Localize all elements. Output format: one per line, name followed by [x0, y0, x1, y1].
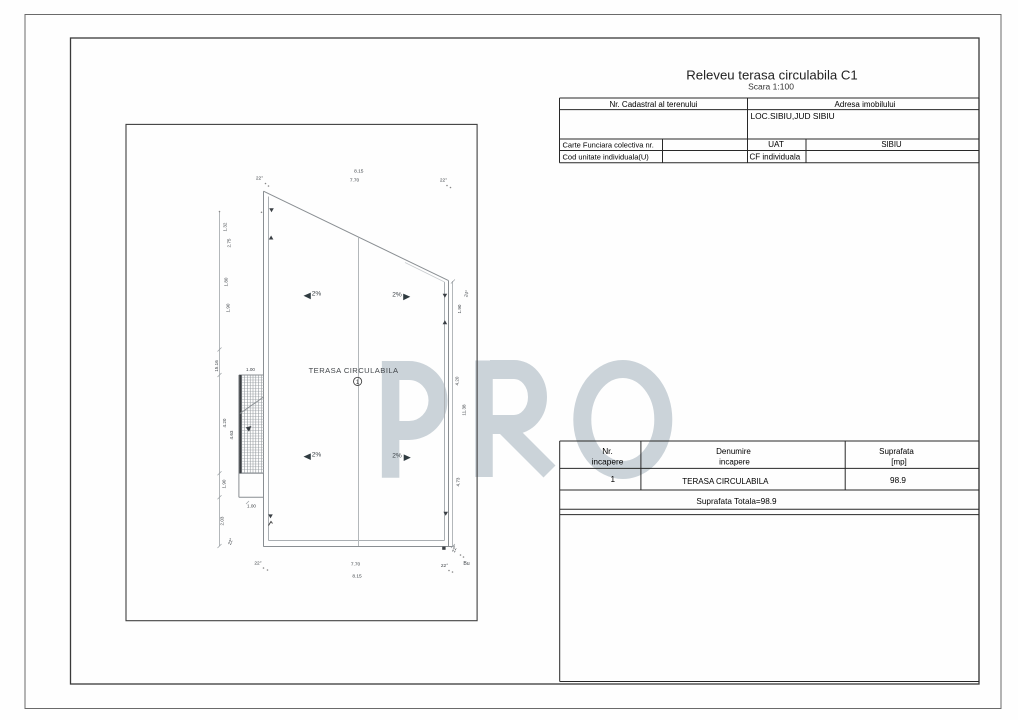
svg-text:11.38: 11.38 — [461, 404, 466, 416]
svg-text:Bu: Bu — [463, 561, 469, 567]
svg-text:2%: 2% — [392, 453, 402, 460]
svg-text:4.63: 4.63 — [229, 430, 234, 439]
svg-text:1.90: 1.90 — [457, 304, 462, 313]
svg-text:22°: 22° — [441, 563, 448, 569]
svg-text:TERASA CIRCULABILA: TERASA CIRCULABILA — [309, 366, 399, 375]
svg-text:Scara 1:100: Scara 1:100 — [748, 82, 794, 92]
svg-text:4.20: 4.20 — [454, 376, 459, 385]
svg-text:incapere: incapere — [592, 456, 624, 466]
svg-text:Suprafata: Suprafata — [879, 447, 914, 456]
svg-text:Cod unitate individuala(U): Cod unitate individuala(U) — [563, 153, 650, 162]
svg-text:2%: 2% — [312, 452, 322, 459]
svg-text:8.15: 8.15 — [352, 574, 362, 580]
svg-text:CF individuala: CF individuala — [750, 153, 801, 162]
svg-text:Carte Funciara colectiva nr.: Carte Funciara colectiva nr. — [563, 140, 654, 149]
svg-text:Nr.: Nr. — [602, 446, 613, 456]
svg-text:22°: 22° — [254, 561, 261, 567]
svg-text:15.16: 15.16 — [214, 360, 219, 372]
svg-text:98.9: 98.9 — [890, 476, 906, 485]
svg-text:22°: 22° — [256, 176, 263, 182]
svg-text:1: 1 — [611, 475, 616, 484]
svg-text:1.90: 1.90 — [222, 479, 227, 488]
svg-text:incapere: incapere — [719, 457, 750, 466]
svg-text:1.00: 1.00 — [246, 367, 255, 372]
svg-text:Denumire: Denumire — [716, 447, 751, 456]
svg-text:LOC.SIBIU,JUD SIBIU: LOC.SIBIU,JUD SIBIU — [751, 111, 835, 121]
svg-text:Releveu terasa circulabila C1: Releveu terasa circulabila C1 — [686, 68, 858, 83]
svg-text:2%: 2% — [312, 291, 322, 298]
svg-text:2.03: 2.03 — [220, 516, 225, 525]
svg-text:1.80: 1.80 — [224, 277, 229, 286]
svg-text:Nr. Cadastral al terenului: Nr. Cadastral al terenului — [609, 100, 697, 109]
svg-text:2.75: 2.75 — [227, 238, 232, 247]
svg-text:UAT: UAT — [768, 140, 784, 149]
svg-text:2%: 2% — [392, 292, 402, 299]
svg-text:4.73: 4.73 — [455, 477, 460, 486]
svg-text:22°: 22° — [440, 178, 447, 184]
svg-text:1.00: 1.00 — [247, 504, 256, 509]
svg-text:[mp]: [mp] — [891, 457, 907, 466]
svg-text:7.70: 7.70 — [350, 178, 360, 184]
svg-text:1.32: 1.32 — [223, 222, 228, 231]
svg-text:4.20: 4.20 — [222, 418, 227, 427]
svg-text:8.15: 8.15 — [354, 169, 364, 175]
svg-text:1.90: 1.90 — [226, 303, 231, 312]
svg-text:TERASA CIRCULABILA: TERASA CIRCULABILA — [682, 477, 769, 486]
svg-text:SIBIU: SIBIU — [881, 140, 902, 149]
svg-text:Suprafata Totala=98.9: Suprafata Totala=98.9 — [696, 497, 777, 506]
svg-text:Adresa imobilului: Adresa imobilului — [835, 100, 896, 109]
svg-text:7.70: 7.70 — [351, 562, 361, 568]
